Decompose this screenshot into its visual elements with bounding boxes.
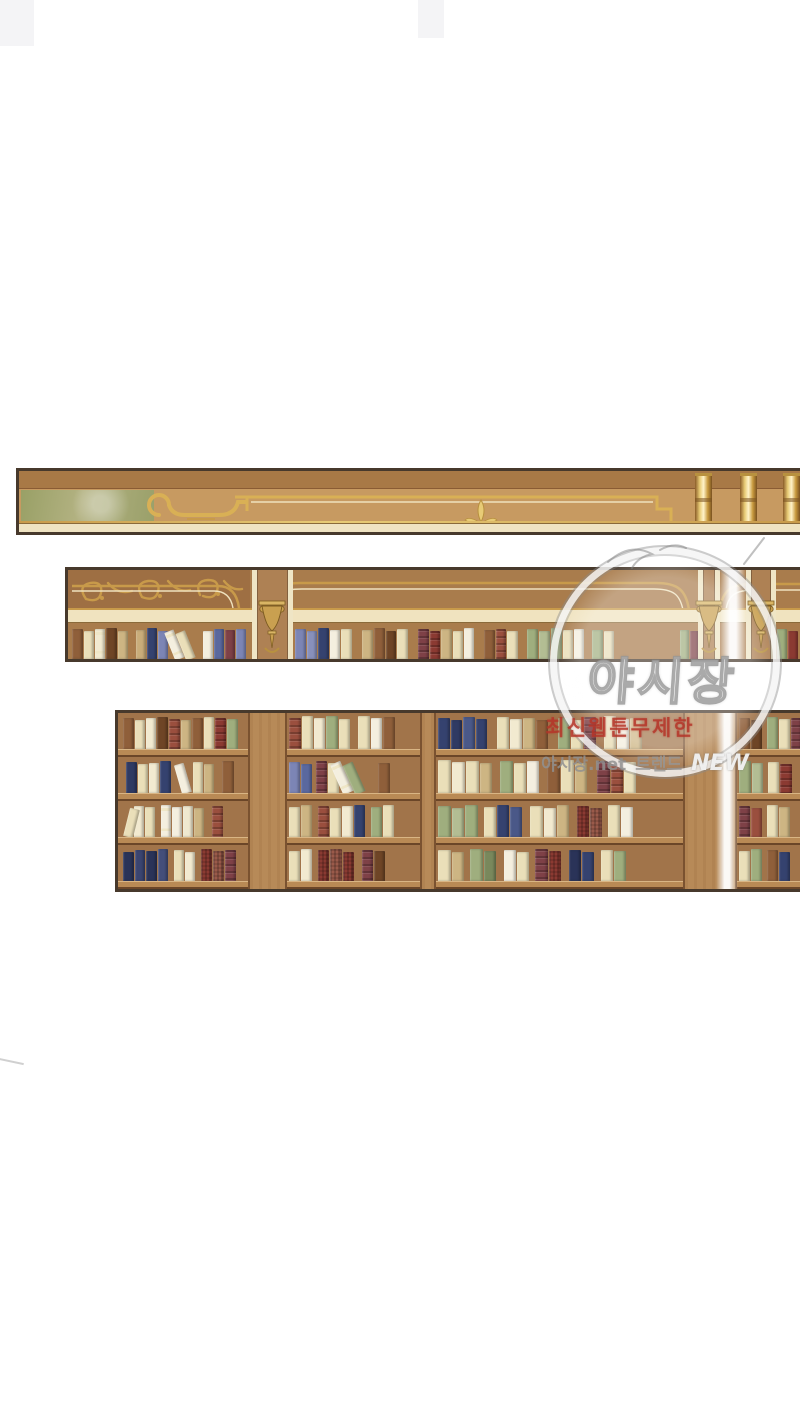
book-spine bbox=[788, 631, 798, 659]
book-spine bbox=[126, 762, 137, 793]
bookcase-row bbox=[287, 757, 420, 793]
book-spine bbox=[500, 761, 513, 793]
bookcase-row bbox=[737, 801, 800, 837]
book-spine bbox=[739, 851, 750, 881]
book-spine bbox=[236, 629, 246, 659]
book-spine bbox=[318, 806, 329, 837]
book-spine bbox=[301, 764, 312, 793]
book-spine bbox=[301, 849, 312, 881]
book-spine bbox=[169, 719, 180, 749]
book-spine bbox=[204, 764, 214, 793]
book-spine bbox=[289, 807, 300, 837]
book-spine bbox=[339, 719, 350, 749]
book-spine bbox=[183, 806, 193, 837]
book-spine bbox=[484, 851, 496, 881]
book-spine bbox=[157, 717, 168, 749]
book-spine bbox=[316, 761, 327, 793]
book-spine bbox=[371, 718, 382, 749]
book-spine bbox=[751, 808, 762, 837]
book-spine bbox=[318, 850, 329, 881]
book-spine bbox=[330, 849, 342, 881]
book-spine bbox=[767, 850, 778, 881]
bookcase-row bbox=[436, 801, 683, 837]
bookcase-section bbox=[436, 713, 683, 889]
cornice-beam bbox=[16, 468, 800, 535]
bookcase-row bbox=[737, 713, 800, 749]
book-spine bbox=[193, 762, 203, 793]
book-spine bbox=[307, 631, 317, 659]
book-spine bbox=[438, 760, 451, 793]
bookcase-row bbox=[737, 757, 800, 793]
book-spine bbox=[438, 806, 451, 837]
book-spine bbox=[517, 852, 529, 881]
book-spine bbox=[174, 763, 192, 793]
book-spine bbox=[584, 717, 596, 749]
book-spine bbox=[480, 763, 492, 793]
bookcase-row bbox=[121, 845, 248, 881]
book-spine bbox=[453, 631, 463, 659]
book-spine bbox=[571, 720, 583, 749]
book-spine bbox=[752, 763, 763, 793]
book-spine bbox=[95, 629, 105, 659]
bookcase-row bbox=[287, 845, 420, 881]
book-spine bbox=[378, 763, 390, 793]
book-spine bbox=[680, 630, 689, 659]
book-spine bbox=[301, 805, 312, 837]
book-spine bbox=[751, 849, 762, 881]
book-spine bbox=[225, 850, 236, 881]
book-spine bbox=[577, 806, 589, 837]
book-spine bbox=[374, 628, 385, 659]
book-spine bbox=[326, 716, 338, 749]
book-spine bbox=[611, 763, 623, 793]
book-spine bbox=[201, 849, 212, 881]
book-spine bbox=[574, 629, 584, 659]
book-spine bbox=[213, 851, 224, 881]
book-spine bbox=[582, 852, 594, 881]
book-spine bbox=[466, 761, 479, 793]
book-spine bbox=[295, 629, 306, 659]
book-spine bbox=[463, 717, 475, 749]
book-spine bbox=[551, 628, 562, 659]
book-spine bbox=[438, 850, 451, 881]
book-spine bbox=[181, 720, 191, 749]
book-spine bbox=[118, 631, 128, 659]
book-spine bbox=[470, 849, 483, 881]
book-spine bbox=[222, 761, 234, 793]
book-spine bbox=[138, 764, 148, 793]
book-spine bbox=[510, 719, 522, 749]
book-spine bbox=[227, 719, 238, 749]
shelf-section bbox=[295, 620, 695, 659]
book-spine bbox=[451, 720, 462, 749]
book-spine bbox=[341, 629, 352, 659]
gilt-colonnette bbox=[783, 473, 800, 527]
bookcase-row bbox=[287, 713, 420, 749]
book-spine bbox=[342, 806, 353, 837]
book-spine bbox=[791, 718, 800, 749]
gilt-colonnette bbox=[740, 473, 757, 527]
book-spine bbox=[484, 807, 496, 837]
book-spine bbox=[614, 851, 626, 881]
book-spine bbox=[174, 850, 184, 881]
book-spine bbox=[135, 720, 145, 749]
book-spine bbox=[330, 808, 341, 837]
upper-shelf-books bbox=[68, 570, 800, 659]
book-spine bbox=[536, 720, 548, 749]
book-spine bbox=[561, 760, 574, 793]
book-spine bbox=[604, 716, 616, 749]
book-spine bbox=[751, 720, 762, 749]
book-spine bbox=[289, 718, 301, 749]
column-capital-icon bbox=[258, 596, 286, 656]
book-spine bbox=[496, 629, 506, 659]
book-spine bbox=[624, 762, 636, 793]
bookcase-section bbox=[737, 713, 800, 889]
book-spine bbox=[621, 807, 633, 837]
book-spine bbox=[358, 716, 370, 749]
green-marble-inlay bbox=[21, 490, 154, 521]
book-spine bbox=[630, 718, 642, 749]
book-spine bbox=[161, 805, 171, 837]
book-spine bbox=[145, 807, 155, 837]
book-spine bbox=[617, 719, 629, 749]
book-spine bbox=[777, 629, 787, 659]
book-spine bbox=[192, 718, 203, 749]
book-spine bbox=[441, 629, 452, 659]
book-spine bbox=[123, 852, 134, 881]
book-spine bbox=[146, 718, 156, 749]
book-spine bbox=[212, 806, 223, 837]
column-capital-icon bbox=[747, 596, 775, 656]
book-spine bbox=[160, 761, 171, 793]
bookcase-row bbox=[121, 713, 248, 749]
book-spine bbox=[214, 629, 224, 659]
book-spine bbox=[215, 718, 226, 749]
book-spine bbox=[374, 851, 385, 881]
light-streak bbox=[720, 570, 746, 659]
background-smudge bbox=[0, 0, 34, 46]
book-spine bbox=[383, 805, 394, 837]
book-spine bbox=[739, 806, 750, 837]
book-spine bbox=[136, 630, 146, 659]
book-spine bbox=[438, 718, 450, 749]
book-spine bbox=[497, 805, 509, 837]
book-spine bbox=[484, 630, 495, 659]
book-spine bbox=[539, 631, 550, 659]
gilt-colonnette bbox=[695, 473, 712, 527]
book-spine bbox=[149, 763, 159, 793]
book-spine bbox=[289, 762, 300, 793]
book-spine bbox=[569, 850, 581, 881]
book-spine bbox=[343, 852, 354, 881]
book-spine bbox=[497, 717, 509, 749]
book-spine bbox=[146, 851, 157, 881]
book-spine bbox=[203, 631, 213, 659]
book-spine bbox=[575, 763, 587, 793]
book-spine bbox=[225, 630, 235, 659]
book-spine bbox=[514, 763, 526, 793]
book-spine bbox=[767, 805, 778, 837]
bookcase-row bbox=[436, 757, 683, 793]
cream-base-strip bbox=[19, 523, 800, 532]
book-spine bbox=[397, 629, 408, 659]
book-spine bbox=[185, 852, 195, 881]
book-spine bbox=[739, 718, 750, 749]
book-spine bbox=[549, 851, 561, 881]
book-spine bbox=[547, 762, 560, 793]
bookcase-row bbox=[121, 801, 248, 837]
stray-sketch-line bbox=[0, 1057, 24, 1065]
main-bookcase bbox=[115, 710, 800, 892]
bookcase-row bbox=[436, 845, 683, 881]
book-spine bbox=[84, 631, 94, 659]
book-spine bbox=[362, 850, 373, 881]
book-spine bbox=[557, 805, 569, 837]
book-spine bbox=[530, 806, 543, 837]
book-spine bbox=[780, 764, 792, 793]
book-spine bbox=[601, 850, 613, 881]
book-spine bbox=[464, 628, 474, 659]
book-spine bbox=[527, 629, 538, 659]
book-spine bbox=[558, 718, 570, 749]
book-spine bbox=[452, 852, 464, 881]
bookcase-divider bbox=[420, 713, 436, 889]
book-spine bbox=[527, 761, 539, 793]
book-spine bbox=[523, 718, 535, 749]
book-spine bbox=[330, 630, 340, 659]
bookcase-row bbox=[737, 845, 800, 881]
book-spine bbox=[779, 719, 790, 749]
book-spine bbox=[476, 719, 487, 749]
book-spine bbox=[544, 808, 556, 837]
upper-bookshelf bbox=[65, 567, 800, 662]
book-spine bbox=[386, 631, 396, 659]
book-spine bbox=[314, 718, 325, 749]
book-spine bbox=[72, 629, 83, 659]
bookcase-section bbox=[121, 713, 248, 889]
light-streak bbox=[716, 713, 738, 889]
book-spine bbox=[768, 762, 779, 793]
book-spine bbox=[452, 762, 465, 793]
book-spine bbox=[465, 805, 478, 837]
background-smudge bbox=[418, 0, 444, 38]
book-spine bbox=[767, 717, 778, 749]
book-spine bbox=[371, 807, 382, 837]
bookcase-divider bbox=[248, 713, 287, 889]
book-spine bbox=[354, 805, 365, 837]
book-spine bbox=[204, 717, 214, 749]
book-spine bbox=[608, 805, 620, 837]
book-spine bbox=[510, 807, 522, 837]
shelf-section bbox=[72, 620, 252, 659]
book-spine bbox=[418, 629, 429, 659]
book-spine bbox=[289, 851, 300, 881]
book-spine bbox=[106, 628, 117, 659]
bookcase-row bbox=[436, 713, 683, 749]
book-spine bbox=[318, 628, 329, 659]
shelf-section bbox=[777, 620, 800, 659]
book-spine bbox=[123, 718, 134, 749]
book-spine bbox=[158, 849, 168, 881]
book-spine bbox=[779, 807, 790, 837]
book-spine bbox=[739, 761, 751, 793]
book-spine bbox=[535, 849, 548, 881]
book-spine bbox=[604, 631, 614, 659]
book-spine bbox=[597, 761, 610, 793]
bookcase-section bbox=[287, 713, 420, 889]
column-capital-icon bbox=[695, 596, 723, 656]
book-spine bbox=[135, 850, 145, 881]
book-spine bbox=[383, 717, 395, 749]
book-spine bbox=[779, 852, 790, 881]
book-spine bbox=[563, 630, 573, 659]
bookcase-row bbox=[121, 757, 248, 793]
book-spine bbox=[592, 630, 603, 659]
book-spine bbox=[172, 807, 182, 837]
book-spine bbox=[590, 808, 602, 837]
book-spine bbox=[504, 850, 516, 881]
book-spine bbox=[302, 716, 313, 749]
book-spine bbox=[147, 628, 157, 659]
book-spine bbox=[430, 631, 440, 659]
book-spine bbox=[452, 808, 464, 837]
bookcase-row bbox=[287, 801, 420, 837]
book-spine bbox=[507, 631, 518, 659]
book-spine bbox=[194, 808, 204, 837]
book-spine bbox=[362, 630, 373, 659]
